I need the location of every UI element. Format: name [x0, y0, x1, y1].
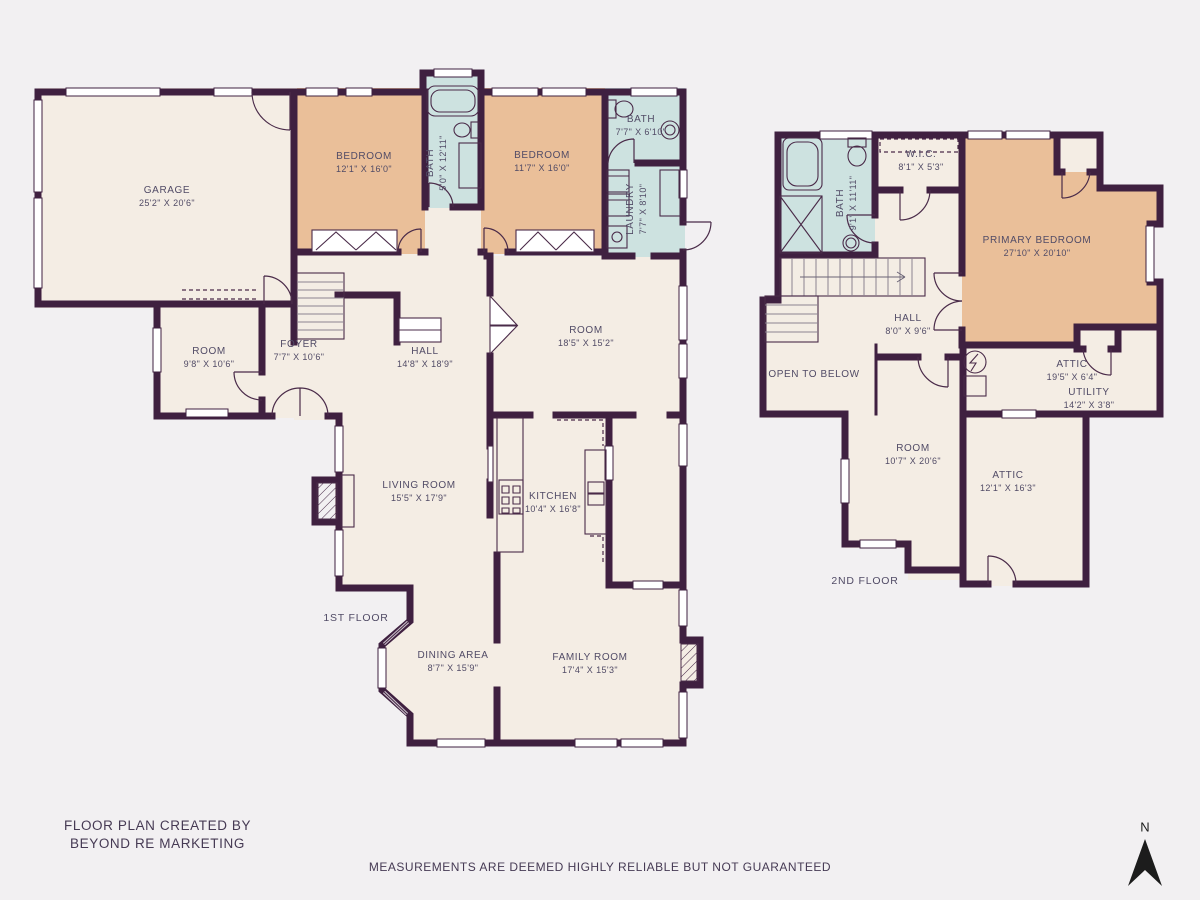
room-label-bedroom: BEDROOM12'1" X 16'0"	[336, 151, 392, 175]
north-label: N	[1140, 820, 1149, 835]
room-name: FAMILY ROOM	[552, 652, 627, 665]
room-label-open-to-below: OPEN TO BELOW	[768, 369, 859, 382]
room-name: LIVING ROOM	[382, 480, 455, 493]
room-dimensions: 15'5" X 17'9"	[382, 493, 455, 504]
room-dimensions: 27'10" X 20'10"	[983, 248, 1092, 259]
room-name: LAUNDRY	[625, 183, 638, 235]
room-dimensions: 18'5" X 15'2"	[558, 338, 614, 349]
room-dimensions: 25'2" X 20'6"	[139, 198, 195, 209]
room-name: FOYER	[274, 339, 325, 352]
room-dimensions: 10'4" X 16'8"	[525, 504, 581, 515]
room-dimensions: 9'1" X 11'11"	[848, 176, 859, 231]
room-label-family-room: FAMILY ROOM17'4" X 15'3"	[552, 652, 627, 676]
room-name: HALL	[397, 346, 453, 359]
room-label-foyer: FOYER7'7" X 10'6"	[274, 339, 325, 363]
floor-label-1: 1ST FLOOR	[323, 612, 388, 624]
room-dimensions: 19'5" X 6'4"	[1047, 372, 1098, 383]
room-name: W.I.C.	[898, 149, 943, 162]
second-floor	[763, 131, 1160, 586]
room-name: BATH	[616, 114, 667, 127]
floor-plan-page: GARAGE25'2" X 20'6"BEDROOM12'1" X 16'0"B…	[0, 0, 1200, 900]
room-label-attic: ATTIC19'5" X 6'4"	[1047, 359, 1098, 383]
room-dimensions: 12'1" X 16'0"	[336, 164, 392, 175]
room-name: BEDROOM	[514, 150, 570, 163]
room-name: UTILITY	[1064, 387, 1115, 400]
room-label-utility: UTILITY14'2" X 3'8"	[1064, 387, 1115, 411]
room-dimensions: 8'7" X 15'9"	[417, 663, 488, 674]
room-name: GARAGE	[139, 185, 195, 198]
room-name: ATTIC	[1047, 359, 1098, 372]
room-label-w-i-c-: W.I.C.8'1" X 5'3"	[898, 149, 943, 173]
room-dimensions: 7'7" X 8'10"	[638, 183, 649, 235]
room-dimensions: 12'1" X 16'3"	[980, 483, 1036, 494]
room-name: BATH	[835, 176, 848, 231]
room-dimensions: 9'8" X 10'6"	[184, 359, 235, 370]
room-label-bath: BATH5'0" X 12'11"	[425, 135, 449, 190]
room-label-bath: BATH7'7" X 6'10"	[616, 114, 667, 138]
room-label-room: ROOM10'7" X 20'6"	[885, 443, 941, 467]
room-name: ATTIC	[980, 470, 1036, 483]
room-label-bath: BATH9'1" X 11'11"	[835, 176, 859, 231]
room-dimensions: 17'4" X 15'3"	[552, 665, 627, 676]
room-label-bedroom: BEDROOM11'7" X 16'0"	[514, 150, 570, 174]
room-label-attic: ATTIC12'1" X 16'3"	[980, 470, 1036, 494]
room-name: ROOM	[885, 443, 941, 456]
room-dimensions: 10'7" X 20'6"	[885, 456, 941, 467]
room-dimensions: 14'8" X 18'9"	[397, 359, 453, 370]
room-label-dining-area: DINING AREA8'7" X 15'9"	[417, 650, 488, 674]
room-dimensions: 7'7" X 6'10"	[616, 127, 667, 138]
room-name: DINING AREA	[417, 650, 488, 663]
room-name: PRIMARY BEDROOM	[983, 235, 1092, 248]
room-name: ROOM	[184, 346, 235, 359]
room-label-laundry: LAUNDRY7'7" X 8'10"	[625, 183, 649, 235]
credit-line-2: BEYOND RE MARKETING	[64, 835, 251, 853]
room-dimensions: 7'7" X 10'6"	[274, 352, 325, 363]
floor-label-2: 2ND FLOOR	[831, 575, 898, 587]
credit-text: FLOOR PLAN CREATED BY BEYOND RE MARKETIN…	[64, 817, 251, 852]
room-dimensions: 11'7" X 16'0"	[514, 163, 570, 174]
room-name: HALL	[885, 313, 930, 326]
room-dimensions: 14'2" X 3'8"	[1064, 400, 1115, 411]
room-label-hall: HALL14'8" X 18'9"	[397, 346, 453, 370]
room-name: BATH	[425, 135, 438, 190]
room-label-living-room: LIVING ROOM15'5" X 17'9"	[382, 480, 455, 504]
room-name: KITCHEN	[525, 491, 581, 504]
room-label-garage: GARAGE25'2" X 20'6"	[139, 185, 195, 209]
disclaimer-text: MEASUREMENTS ARE DEEMED HIGHLY RELIABLE …	[0, 860, 1200, 874]
room-dimensions: 8'1" X 5'3"	[898, 162, 943, 173]
credit-line-1: FLOOR PLAN CREATED BY	[64, 817, 251, 835]
room-name: ROOM	[558, 325, 614, 338]
room-dimensions: 8'0" X 9'6"	[885, 326, 930, 337]
room-dimensions: 5'0" X 12'11"	[438, 135, 449, 190]
room-label-hall: HALL8'0" X 9'6"	[885, 313, 930, 337]
room-name: BEDROOM	[336, 151, 392, 164]
room-label-primary-bedroom: PRIMARY BEDROOM27'10" X 20'10"	[983, 235, 1092, 259]
room-label-kitchen: KITCHEN10'4" X 16'8"	[525, 491, 581, 515]
floor-plan-drawing	[0, 0, 1200, 900]
room-name: OPEN TO BELOW	[768, 369, 859, 382]
room-label-room: ROOM9'8" X 10'6"	[184, 346, 235, 370]
room-label-room: ROOM18'5" X 15'2"	[558, 325, 614, 349]
